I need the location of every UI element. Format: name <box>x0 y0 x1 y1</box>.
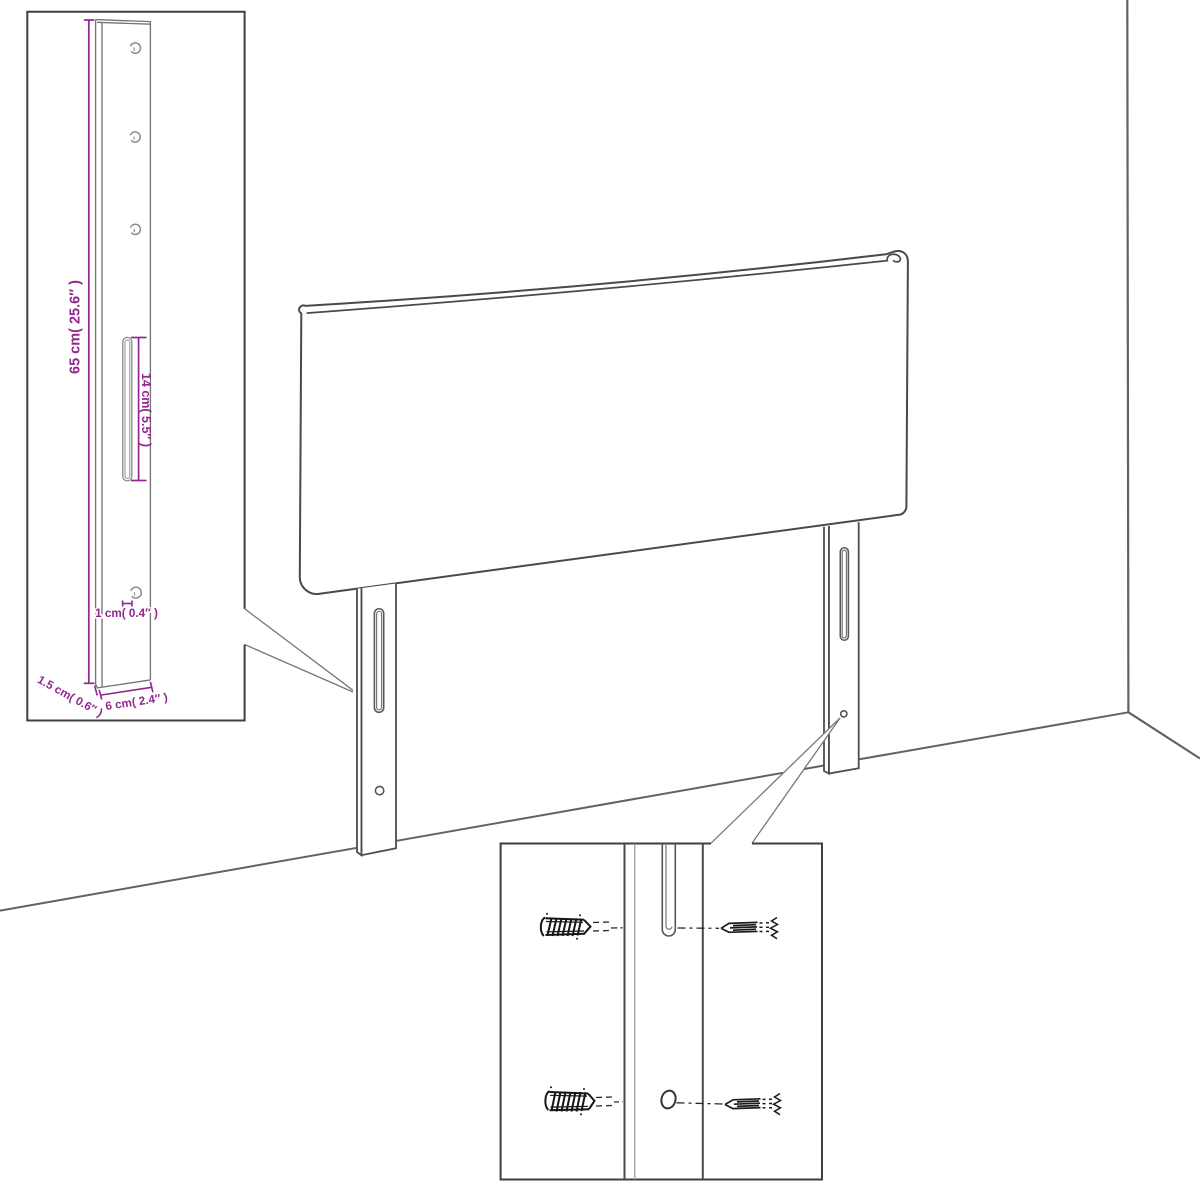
svg-text:1 cm( 0.4″ ): 1 cm( 0.4″ ) <box>95 607 158 620</box>
svg-text:14 cm( 5.5″ ): 14 cm( 5.5″ ) <box>139 373 153 447</box>
svg-text:65 cm( 25.6″ ): 65 cm( 25.6″ ) <box>67 280 83 374</box>
